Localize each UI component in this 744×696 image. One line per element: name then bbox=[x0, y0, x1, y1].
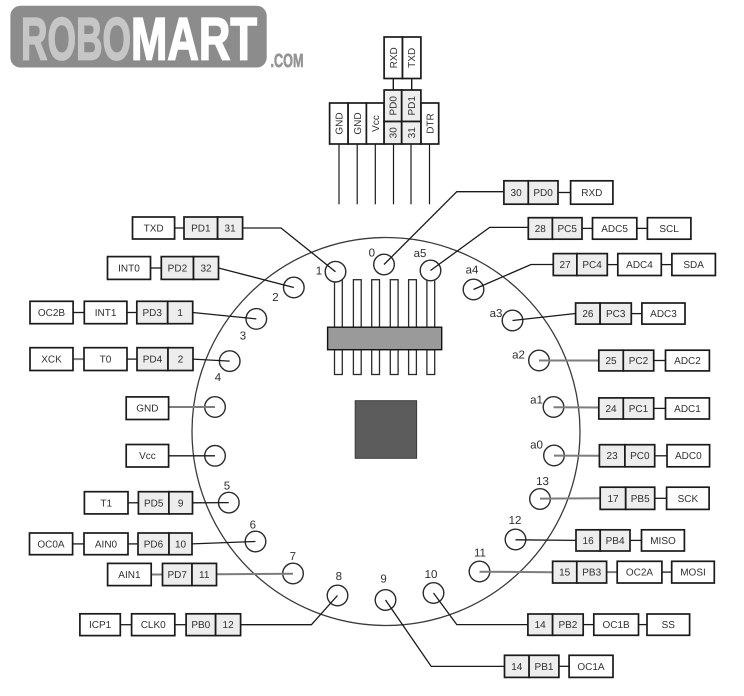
svg-text:Vcc: Vcc bbox=[139, 451, 156, 462]
svg-text:a4: a4 bbox=[466, 265, 479, 277]
svg-text:PD3: PD3 bbox=[142, 308, 162, 319]
svg-text:PC0: PC0 bbox=[630, 451, 650, 462]
svg-text:MISO: MISO bbox=[650, 536, 676, 547]
svg-text:31: 31 bbox=[407, 127, 418, 139]
svg-text:1: 1 bbox=[177, 308, 183, 319]
svg-text:OC0A: OC0A bbox=[37, 539, 65, 550]
svg-text:Vcc: Vcc bbox=[371, 115, 382, 132]
svg-text:XCK: XCK bbox=[41, 355, 62, 366]
svg-text:PD4: PD4 bbox=[143, 355, 163, 366]
svg-text:PD0: PD0 bbox=[533, 188, 553, 199]
svg-text:OC1B: OC1B bbox=[602, 620, 630, 631]
svg-text:a3: a3 bbox=[490, 308, 503, 320]
svg-text:15: 15 bbox=[559, 568, 571, 579]
svg-text:24: 24 bbox=[605, 404, 617, 415]
svg-text:16: 16 bbox=[583, 536, 595, 547]
svg-text:TXD: TXD bbox=[407, 48, 418, 68]
svg-text:OC1A: OC1A bbox=[577, 662, 605, 673]
svg-text:23: 23 bbox=[607, 451, 619, 462]
svg-text:11: 11 bbox=[474, 548, 486, 560]
svg-text:AIN1: AIN1 bbox=[118, 570, 141, 581]
svg-text:PB1: PB1 bbox=[535, 662, 554, 673]
svg-text:11: 11 bbox=[199, 570, 210, 581]
svg-text:25: 25 bbox=[605, 356, 617, 367]
svg-text:PD2: PD2 bbox=[168, 264, 188, 275]
svg-text:PB4: PB4 bbox=[606, 536, 625, 547]
svg-text:10: 10 bbox=[175, 539, 187, 550]
svg-text:PD1: PD1 bbox=[407, 96, 418, 116]
svg-text:PD7: PD7 bbox=[167, 570, 187, 581]
svg-text:9: 9 bbox=[380, 574, 386, 586]
svg-text:PB2: PB2 bbox=[558, 620, 577, 631]
svg-text:1: 1 bbox=[316, 265, 322, 277]
svg-text:CLK0: CLK0 bbox=[141, 620, 166, 631]
svg-text:SCK: SCK bbox=[678, 494, 699, 505]
svg-text:SS: SS bbox=[662, 620, 676, 631]
svg-text:ADC5: ADC5 bbox=[601, 224, 628, 235]
svg-text:30: 30 bbox=[511, 188, 523, 199]
svg-text:14: 14 bbox=[535, 620, 547, 631]
svg-text:PC2: PC2 bbox=[629, 356, 649, 367]
svg-text:AIN0: AIN0 bbox=[95, 539, 118, 550]
svg-text:ROBO: ROBO bbox=[21, 6, 131, 73]
svg-text:32: 32 bbox=[200, 264, 212, 275]
svg-text:T1: T1 bbox=[100, 498, 112, 509]
svg-text:9: 9 bbox=[178, 498, 184, 509]
svg-text:13: 13 bbox=[536, 476, 549, 488]
svg-text:a2: a2 bbox=[512, 350, 525, 362]
svg-text:.COM: .COM bbox=[271, 51, 304, 72]
svg-text:a1: a1 bbox=[530, 395, 543, 407]
svg-text:3: 3 bbox=[240, 331, 246, 343]
svg-text:12: 12 bbox=[223, 620, 235, 631]
svg-text:0: 0 bbox=[369, 248, 375, 260]
svg-text:2: 2 bbox=[272, 292, 278, 304]
svg-text:6: 6 bbox=[250, 519, 256, 531]
svg-text:ADC4: ADC4 bbox=[626, 260, 653, 271]
svg-text:TXD: TXD bbox=[144, 224, 164, 235]
svg-text:14: 14 bbox=[511, 662, 523, 673]
svg-text:a0: a0 bbox=[530, 440, 543, 452]
svg-text:27: 27 bbox=[560, 260, 572, 271]
svg-text:4: 4 bbox=[215, 372, 222, 384]
svg-text:PD1: PD1 bbox=[191, 224, 211, 235]
svg-text:PC4: PC4 bbox=[582, 260, 602, 271]
svg-text:PC1: PC1 bbox=[629, 404, 649, 415]
svg-text:a5: a5 bbox=[414, 248, 427, 260]
svg-text:28: 28 bbox=[535, 224, 547, 235]
svg-text:OC2A: OC2A bbox=[626, 568, 654, 579]
svg-text:PD6: PD6 bbox=[144, 539, 164, 550]
svg-text:PB3: PB3 bbox=[582, 568, 601, 579]
svg-text:ADC1: ADC1 bbox=[674, 404, 701, 415]
svg-text:MART: MART bbox=[131, 6, 257, 73]
svg-text:PD0: PD0 bbox=[388, 96, 399, 116]
svg-text:INT0: INT0 bbox=[118, 264, 140, 275]
svg-text:PC5: PC5 bbox=[557, 224, 577, 235]
svg-text:OC2B: OC2B bbox=[38, 308, 66, 319]
svg-text:GND: GND bbox=[334, 112, 345, 134]
svg-text:PB0: PB0 bbox=[191, 620, 210, 631]
svg-text:T0: T0 bbox=[100, 355, 112, 366]
svg-text:ADC3: ADC3 bbox=[650, 309, 677, 320]
svg-text:RXD: RXD bbox=[389, 47, 400, 68]
svg-text:PC3: PC3 bbox=[606, 309, 626, 320]
svg-text:PD5: PD5 bbox=[144, 498, 164, 509]
svg-text:SCL: SCL bbox=[659, 224, 679, 235]
svg-text:7: 7 bbox=[290, 551, 296, 563]
svg-text:12: 12 bbox=[509, 515, 522, 527]
svg-text:ICP1: ICP1 bbox=[89, 620, 112, 631]
svg-text:2: 2 bbox=[178, 355, 184, 366]
svg-text:30: 30 bbox=[388, 127, 399, 139]
svg-text:SDA: SDA bbox=[683, 260, 704, 271]
svg-text:GND: GND bbox=[136, 404, 158, 415]
svg-text:10: 10 bbox=[425, 569, 438, 581]
svg-text:17: 17 bbox=[607, 494, 619, 505]
svg-text:GND: GND bbox=[353, 112, 364, 134]
svg-text:DTR: DTR bbox=[425, 113, 436, 134]
svg-text:PB5: PB5 bbox=[631, 494, 650, 505]
svg-text:ADC2: ADC2 bbox=[674, 356, 701, 367]
svg-text:RXD: RXD bbox=[581, 188, 602, 199]
svg-text:8: 8 bbox=[336, 571, 342, 583]
svg-text:INT1: INT1 bbox=[95, 308, 117, 319]
svg-text:MOSI: MOSI bbox=[680, 568, 706, 579]
svg-text:ADC0: ADC0 bbox=[675, 451, 702, 462]
svg-text:5: 5 bbox=[224, 480, 230, 492]
svg-text:26: 26 bbox=[582, 309, 594, 320]
svg-text:31: 31 bbox=[225, 224, 237, 235]
